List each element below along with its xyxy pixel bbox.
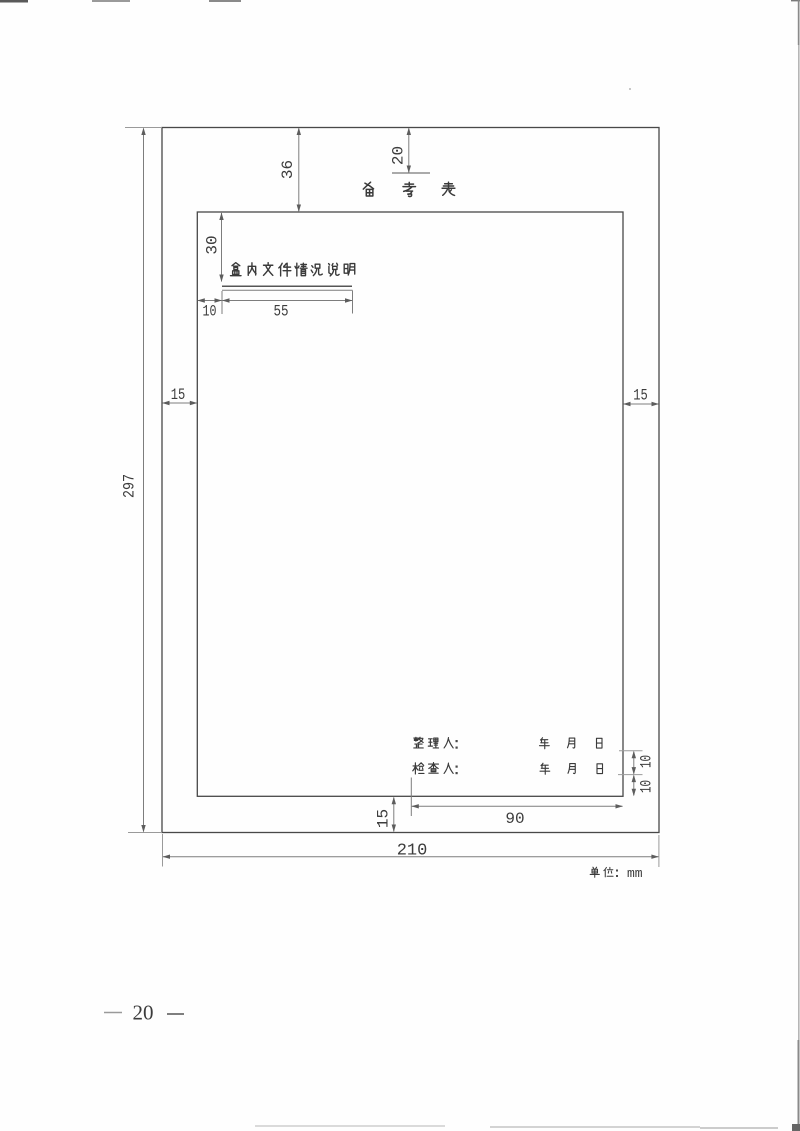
svg-text:297: 297 [121,474,139,498]
svg-text:36: 36 [279,160,297,179]
svg-text:mm: mm [627,866,643,881]
svg-text:10: 10 [638,755,656,768]
svg-text:10: 10 [203,303,217,321]
svg-text:15: 15 [171,386,186,404]
svg-text:10: 10 [638,780,656,793]
svg-text:15: 15 [633,387,648,405]
svg-text:20: 20 [390,146,408,165]
svg-text:15: 15 [375,809,393,828]
svg-text:55: 55 [274,303,289,321]
svg-text:20: 20 [133,1001,154,1025]
svg-text:90: 90 [505,810,524,828]
svg-text:30: 30 [204,235,222,254]
svg-text:210: 210 [397,842,428,861]
